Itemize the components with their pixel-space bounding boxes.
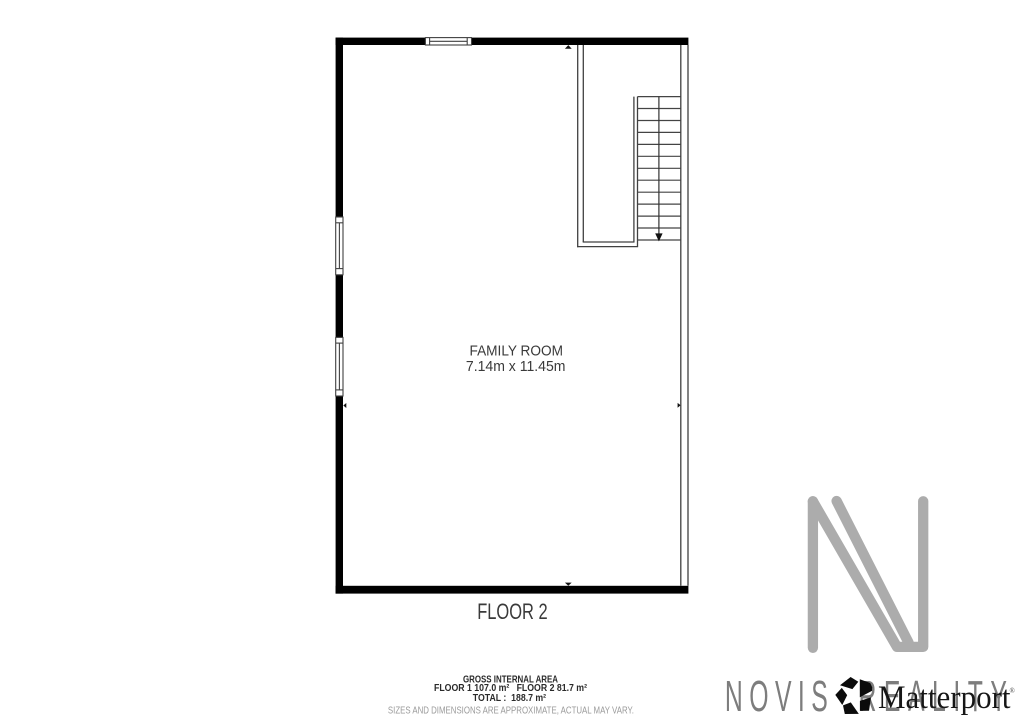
svg-text:7.14m x 11.45m: 7.14m x 11.45m: [466, 358, 566, 375]
svg-text:SIZES AND DIMENSIONS ARE APPRO: SIZES AND DIMENSIONS ARE APPROXIMATE, AC…: [388, 704, 634, 716]
svg-text:NOVIS: NOVIS: [725, 672, 834, 721]
svg-text:®: ®: [1010, 687, 1016, 695]
svg-text:Matterport: Matterport: [878, 680, 1011, 716]
svg-text:FAMILY ROOM: FAMILY ROOM: [470, 342, 564, 359]
svg-text:TOTAL : 188.7 m²: TOTAL : 188.7 m²: [473, 692, 547, 704]
svg-text:FLOOR 2: FLOOR 2: [477, 599, 548, 624]
